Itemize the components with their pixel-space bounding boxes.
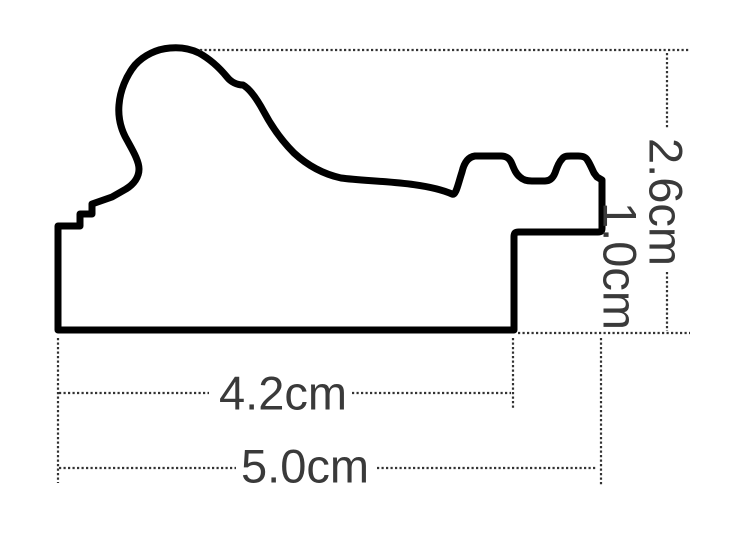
diagram-canvas: 2.6cm 1.0cm 4.2cm 5.0cm	[0, 0, 756, 538]
total-height-label: 2.6cm	[643, 138, 690, 266]
moulding-profile-outline	[58, 48, 602, 330]
rabbet-height-label: 1.0cm	[597, 202, 644, 330]
base-width-label: 4.2cm	[219, 370, 347, 417]
total-width-label: 5.0cm	[241, 443, 369, 490]
